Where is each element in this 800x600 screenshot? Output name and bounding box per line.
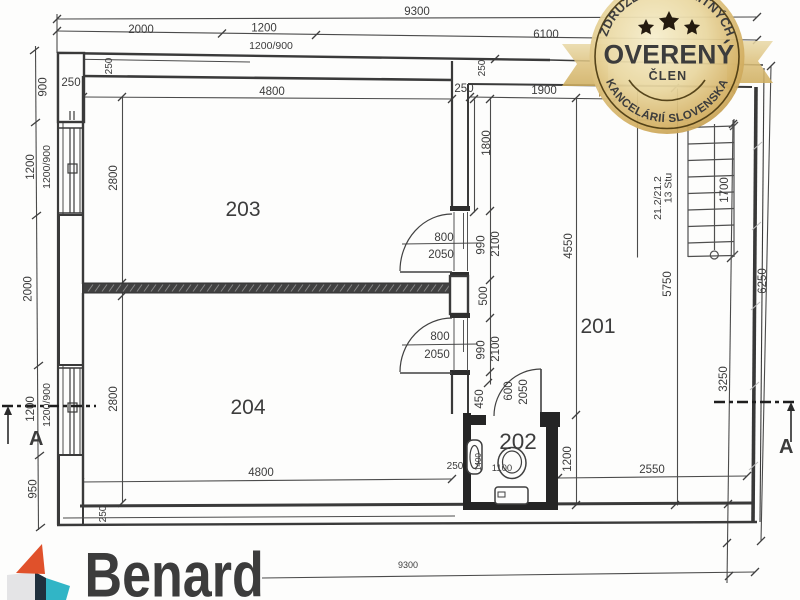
svg-text:2000: 2000 — [23, 276, 35, 302]
svg-text:990: 990 — [476, 340, 488, 359]
svg-text:4800: 4800 — [248, 467, 274, 479]
svg-text:2800: 2800 — [108, 386, 120, 412]
svg-text:1100: 1100 — [492, 463, 512, 474]
svg-text:A: A — [779, 436, 793, 458]
svg-text:2050: 2050 — [428, 249, 454, 261]
svg-text:500: 500 — [478, 286, 490, 305]
svg-text:250: 250 — [477, 59, 488, 76]
svg-text:1700: 1700 — [719, 177, 731, 203]
svg-text:950: 950 — [28, 479, 40, 498]
svg-text:800: 800 — [430, 331, 449, 343]
svg-text:OVERENÝ: OVERENÝ — [604, 40, 735, 70]
svg-text:1200: 1200 — [562, 446, 574, 472]
svg-text:900: 900 — [38, 77, 50, 96]
svg-text:2800: 2800 — [108, 165, 120, 191]
svg-text:6100: 6100 — [533, 29, 559, 41]
svg-text:1200/900: 1200/900 — [249, 40, 293, 52]
svg-text:600: 600 — [503, 381, 515, 400]
svg-text:1200/900: 1200/900 — [41, 145, 53, 189]
svg-text:1200: 1200 — [25, 396, 37, 422]
svg-text:2050: 2050 — [518, 379, 530, 405]
svg-text:2550: 2550 — [639, 464, 665, 476]
svg-text:204: 204 — [230, 396, 265, 419]
svg-text:250: 250 — [104, 57, 115, 74]
svg-text:4550: 4550 — [563, 233, 575, 259]
svg-text:1400: 1400 — [474, 453, 483, 471]
svg-text:2100: 2100 — [490, 336, 502, 362]
svg-text:800: 800 — [434, 232, 453, 244]
svg-text:5750: 5750 — [662, 271, 674, 297]
svg-text:4800: 4800 — [259, 86, 285, 98]
svg-text:13 Stu: 13 Stu — [663, 173, 675, 204]
svg-text:1800: 1800 — [481, 130, 493, 156]
svg-text:450: 450 — [474, 389, 486, 408]
svg-text:2000: 2000 — [128, 24, 154, 36]
svg-text:9300: 9300 — [398, 560, 418, 570]
svg-text:250: 250 — [98, 505, 109, 522]
svg-text:1200/900: 1200/900 — [41, 383, 53, 427]
svg-text:202: 202 — [499, 429, 537, 454]
svg-text:250: 250 — [447, 461, 464, 472]
svg-text:Benard: Benard — [85, 541, 264, 600]
svg-text:203: 203 — [225, 198, 260, 221]
svg-text:2050: 2050 — [424, 349, 450, 361]
svg-text:1900: 1900 — [531, 85, 557, 97]
svg-text:9300: 9300 — [404, 6, 430, 18]
svg-text:A: A — [29, 428, 43, 450]
svg-text:2100: 2100 — [490, 231, 502, 257]
svg-text:ČLEN: ČLEN — [649, 68, 688, 83]
svg-text:250: 250 — [61, 77, 80, 89]
svg-text:250: 250 — [454, 83, 473, 95]
svg-text:990: 990 — [476, 235, 488, 254]
svg-text:3250: 3250 — [718, 366, 730, 392]
svg-text:6250: 6250 — [757, 268, 769, 294]
svg-text:1200: 1200 — [25, 154, 37, 180]
svg-text:201: 201 — [580, 315, 615, 338]
svg-text:1200: 1200 — [251, 23, 277, 35]
